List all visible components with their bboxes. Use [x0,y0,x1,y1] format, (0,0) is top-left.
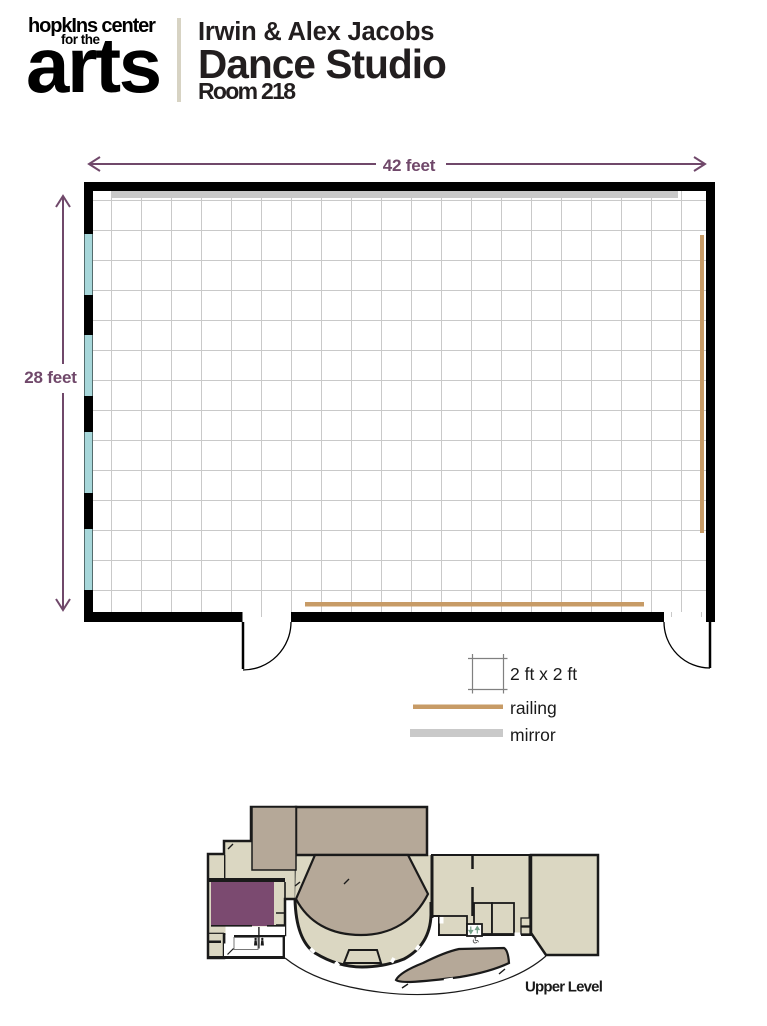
svg-text:railing: railing [510,698,557,718]
svg-text:mirror: mirror [510,725,556,745]
svg-text:28 feet: 28 feet [24,368,77,387]
svg-text:2 ft x 2 ft: 2 ft x 2 ft [510,664,577,684]
svg-text:42 feet: 42 feet [383,156,436,175]
svg-text:Upper Level: Upper Level [525,979,603,996]
